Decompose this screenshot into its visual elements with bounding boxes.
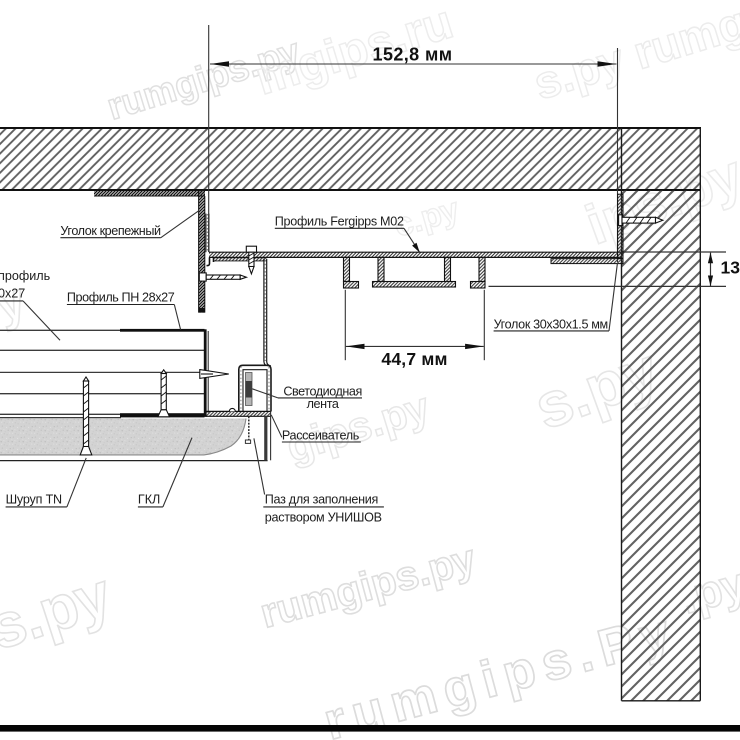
svg-text:Паз для заполнения: Паз для заполнения [265, 492, 378, 506]
svg-text:ps.ру: ps.ру [0, 560, 120, 676]
svg-text:Профиль ПН 28х27: Профиль ПН 28х27 [67, 291, 175, 305]
svg-text:0х27: 0х27 [0, 287, 25, 301]
svg-text:Уголок крепежный: Уголок крепежный [60, 224, 161, 238]
svg-text:rumgips.ру: rumgips.ру [255, 535, 480, 637]
svg-text:44,7 мм: 44,7 мм [381, 349, 447, 369]
svg-text:Уголок 30х30х1.5 мм: Уголок 30х30х1.5 мм [494, 318, 608, 332]
svg-text:раствором УНИШОВ: раствором УНИШОВ [265, 510, 382, 524]
svg-text:ГКЛ: ГКЛ [138, 492, 160, 506]
svg-text:Шуруп TN: Шуруп TN [6, 492, 62, 506]
svg-text:Рассеиватель: Рассеиватель [282, 429, 360, 443]
svg-text:профиль: профиль [0, 269, 51, 283]
svg-text:152,8 мм: 152,8 мм [373, 45, 453, 65]
svg-text:s.ру rumg: s.ру rumg [528, 0, 740, 110]
svg-text:лента: лента [307, 397, 339, 411]
svg-text:13: 13 [721, 258, 740, 278]
svg-text:Профиль Fergipps M02: Профиль Fergipps M02 [275, 215, 404, 229]
